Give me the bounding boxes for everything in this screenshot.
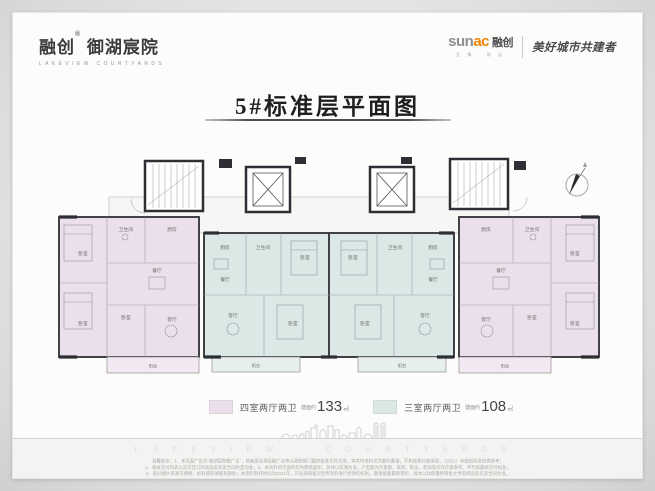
title-underline [205,119,451,121]
header-divider [522,36,523,58]
room-label: 客厅 [228,312,238,319]
room-label: 卧室 [121,314,131,321]
room-label: 客厅 [420,312,430,319]
project-logo-cn: 融创® 御湖宸院 [39,33,165,58]
room-label: 阳台 [149,363,157,370]
sunac-slogan: 美好城市共建者 [532,39,616,55]
legend-unit: ㎡ [343,404,349,414]
room-label: 卧室 [288,320,298,327]
room-label: 卧室 [570,320,580,327]
legend-area: 133 [317,400,342,414]
disclaimer-text: 温馨提示：1、本页面广告为“御湖宸院推广名”，其备案名称及推广名等以政府部门最终… [11,458,644,477]
room-label: 厨房 [481,226,491,233]
legend-prefix: 建面约 [465,404,480,411]
stair-core-left [145,161,203,211]
room-label: 厨房 [428,244,438,251]
legend-prefix: 建面约 [301,404,316,411]
room-label: 餐厅 [428,276,438,283]
room-label: 卫生间 [525,226,540,233]
room-label: 卧室 [570,250,580,257]
room-label: 卫生间 [256,244,271,251]
room-label: 卧室 [78,320,88,327]
legend-unit: ㎡ [507,404,513,414]
legend-swatch-teal [373,400,397,414]
legend-label: 三室两厅两卫 [404,401,461,414]
legend-item-108: 三室两厅两卫 建面约 108 ㎡ [373,400,513,414]
room-label: 卧室 [300,254,310,261]
page-title: 5#标准层平面图 [13,87,642,121]
sunac-logo-block: sunac融创 至 臻 · 致 远 美好城市共建者 [448,35,616,58]
room-label: 卧室 [348,254,358,261]
room-label: 阳台 [252,362,260,369]
legend-label: 四室两厅两卫 [240,401,297,414]
footer-watermark: LAKEVIEW COURTYARDS [13,445,642,454]
room-label: 餐厅 [152,267,162,274]
room-label: 厨房 [220,244,230,251]
disclaimer-line: 4、部分图片来源于网络，如有侵权请联系删除；本资料制作时间为2021年，开发商保… [11,471,644,477]
sunac-tagline-small: 至 臻 · 致 远 [448,52,513,58]
project-name: 御湖宸院 [87,38,159,57]
legend-item-133: 四室两厅两卫 建面约 133 ㎡ [209,400,349,414]
units-center-108: 厨房 卫生间 卧室 餐厅 客厅 卧室 厨房 卫生间 卧室 餐厅 客厅 卧室 阳台… [204,233,454,372]
sunac-logo: sunac融创 至 臻 · 致 远 [448,35,513,58]
floorplan: 卧室 卫生间 厨房 餐厅 卧室 卧室 客厅 阳台 [49,155,609,400]
room-label: 卧室 [527,314,537,321]
room-label: 阳台 [398,362,406,369]
room-label: 客厅 [481,316,491,323]
page-background: { "brand": { "name_cn": "融创", "reg_mark"… [0,0,655,491]
room-label: 餐厅 [220,276,230,283]
registered-mark: ® [75,31,81,38]
legend-swatch-pink [209,400,233,414]
unit-left-133: 卧室 卫生间 厨房 餐厅 卧室 卧室 客厅 阳台 [59,217,199,373]
room-label: 卫生间 [119,226,134,233]
legend: 四室两厅两卫 建面约 133 ㎡ 三室两厅两卫 建面约 108 ㎡ [209,400,513,414]
brand-name: 融创 [39,38,75,57]
room-label: 餐厅 [496,267,506,274]
stair-core-right [450,159,508,209]
skyline-graphic [281,422,391,439]
elevator-left [246,167,290,212]
legend-area: 108 [481,400,506,414]
elevator-right [370,167,414,212]
room-label: 卧室 [360,320,370,327]
room-label: 客厅 [167,316,177,323]
room-label: 卫生间 [388,244,403,251]
room-label: 卧室 [78,250,88,257]
project-logo: 融创® 御湖宸院 LAKEVIEW COURTYARDS [39,33,165,67]
compass-icon [566,162,588,196]
sunac-cn: 融创 [492,37,513,49]
unit-right-133: 卧室 卫生间 厨房 餐厅 卧室 卧室 客厅 阳台 [459,217,599,373]
room-label: 厨房 [167,226,177,233]
sunac-word-orange: ac [473,33,489,50]
project-logo-en: LAKEVIEW COURTYARDS [39,61,165,67]
sunac-word-gray: sun [448,33,473,50]
poster-card: 融创® 御湖宸院 LAKEVIEW COURTYARDS sunac融创 至 臻… [12,12,643,479]
sunac-wordmark: sunac融创 [448,35,513,50]
footer-strip: LAKEVIEW COURTYARDS 温馨提示：1、本页面广告为“御湖宸院推广… [13,438,642,478]
room-label: 阳台 [501,363,509,370]
